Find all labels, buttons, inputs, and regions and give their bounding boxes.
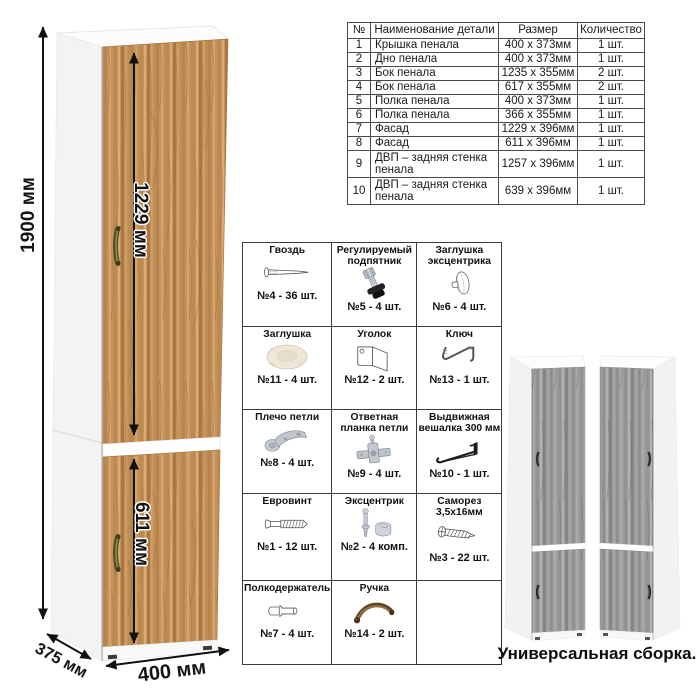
- assembly-sheet: 1900 мм 1229 мм 611 мм 400 мм 375 мм № Н…: [0, 0, 700, 700]
- nail-icon: [256, 256, 318, 290]
- hardware-item-count: №13 - 1 шт.: [429, 374, 489, 386]
- cell-name: Бок пенала: [371, 67, 499, 81]
- pullout-hanger-icon: [428, 434, 490, 468]
- hardware-item-count: №12 - 2 шт.: [344, 374, 404, 386]
- header-qty: Количество: [578, 23, 645, 39]
- cell-num: 8: [348, 137, 371, 151]
- adjustable-foot-icon: [343, 267, 405, 301]
- parts-table: № Наименование детали Размер Количество …: [347, 22, 645, 205]
- hardware-empty-cell: [417, 581, 502, 665]
- hardware-cell: Полкодержатель №7 - 4 шт.: [243, 581, 332, 665]
- cell-size: 400 x 373мм: [499, 53, 578, 67]
- hardware-cell: Уголок №12 - 2 шт.: [332, 327, 417, 410]
- cell-size: 400 x 373мм: [499, 39, 578, 53]
- table-row: 1 Крышка пенала 400 x 373мм 1 шт.: [348, 39, 645, 53]
- table-row: 3 Бок пенала 1235 x 355мм 2 шт.: [348, 67, 645, 81]
- cell-size: 1235 x 355мм: [499, 67, 578, 81]
- hardware-cell: Ключ №13 - 1 шт.: [417, 327, 502, 410]
- hardware-item-name: Гвоздь: [269, 245, 305, 256]
- hardware-item-count: №6 - 4 шт.: [432, 301, 486, 313]
- hardware-cell: Саморез 3,5х16мм №3 - 22 шт.: [417, 494, 502, 581]
- cell-name: ДВП – задняя стенка пенала: [371, 151, 499, 178]
- hardware-item-count: №7 - 4 шт.: [260, 628, 314, 640]
- hardware-item-name: Евровинт: [262, 496, 312, 507]
- cell-name: Дно пенала: [371, 53, 499, 67]
- hardware-cell: Заглушка эксцентрика №6 - 4 шт.: [417, 243, 502, 327]
- handle-icon: [343, 594, 405, 628]
- hardware-row: Гвоздь №4 - 36 шт. Регулируемый подпятни…: [243, 243, 502, 327]
- cell-name: Полка пенала: [371, 95, 499, 109]
- confirmat-screw-icon: [256, 507, 318, 541]
- hardware-cell: Плечо петли №8 - 4 шт.: [243, 410, 332, 494]
- cell-num: 3: [348, 67, 371, 81]
- cell-num: 1: [348, 39, 371, 53]
- plug-icon: [256, 340, 318, 374]
- hardware-item-count: №3 - 22 шт.: [429, 552, 489, 564]
- cell-num: 4: [348, 81, 371, 95]
- cell-qty: 1 шт.: [578, 123, 645, 137]
- cell-qty: 1 шт.: [578, 151, 645, 178]
- cell-name: Крышка пенала: [371, 39, 499, 53]
- hardware-cell: Заглушка №11 - 4 шт.: [243, 327, 332, 410]
- hardware-item-name: Саморез 3,5х16мм: [418, 496, 500, 518]
- dimension-label-height: 1900 мм: [18, 177, 40, 253]
- cell-size: 400 x 373мм: [499, 95, 578, 109]
- cell-qty: 1 шт.: [578, 178, 645, 205]
- hardware-item-count: №10 - 1 шт.: [429, 468, 489, 480]
- cell-qty: 1 шт.: [578, 39, 645, 53]
- corner-bracket-icon: [343, 340, 405, 374]
- hardware-item-count: №9 - 4 шт.: [347, 468, 401, 480]
- hardware-item-count: №14 - 2 шт.: [344, 628, 404, 640]
- cell-name: Бок пенала: [371, 81, 499, 95]
- cell-name: Фасад: [371, 123, 499, 137]
- table-row: 8 Фасад 611 x 396мм 1 шт.: [348, 137, 645, 151]
- hinge-arm-icon: [256, 423, 318, 457]
- hardware-item-count: №4 - 36 шт.: [257, 290, 317, 302]
- cell-name: ДВП – задняя стенка пенала: [371, 178, 499, 205]
- cell-size: 617 x 355мм: [499, 81, 578, 95]
- hardware-item-name: Ручка: [360, 583, 389, 594]
- cell-size: 611 x 396мм: [499, 137, 578, 151]
- hardware-row: Плечо петли №8 - 4 шт. Ответная планка п…: [243, 410, 502, 494]
- self-tapping-screw-icon: [428, 518, 490, 552]
- hardware-item-count: №1 - 12 шт.: [257, 541, 317, 553]
- table-row: 4 Бок пенала 617 x 355мм 2 шт.: [348, 81, 645, 95]
- hardware-item-name: Эксцентрик: [345, 496, 404, 507]
- cell-size: 366 x 355мм: [499, 109, 578, 123]
- cell-qty: 2 шт.: [578, 81, 645, 95]
- hardware-item-name: Плечо петли: [255, 412, 319, 423]
- hardware-item-count: №8 - 4 шт.: [260, 457, 314, 469]
- hardware-item-count: №11 - 4 шт.: [257, 374, 317, 386]
- hardware-cell: Евровинт №1 - 12 шт.: [243, 494, 332, 581]
- dimension-label-lower-door: 611 мм: [130, 502, 152, 566]
- hardware-item-name: Регулируемый подпятник: [333, 245, 415, 267]
- universal-assembly-note: Универсальная сборка.: [497, 644, 697, 664]
- header-size: Размер: [499, 23, 578, 39]
- cell-size: 1229 x 396мм: [499, 123, 578, 137]
- table-row: 10 ДВП – задняя стенка пенала 639 x 396м…: [348, 178, 645, 205]
- cam-lock-icon: [343, 507, 405, 541]
- hardware-item-name: Заглушка: [263, 329, 311, 340]
- hardware-cell: Ответная планка петли №9 - 4 шт.: [332, 410, 417, 494]
- cell-num: 5: [348, 95, 371, 109]
- hardware-item-name: Полкодержатель: [244, 583, 330, 594]
- hardware-item-name: Уголок: [357, 329, 391, 340]
- cell-qty: 1 шт.: [578, 95, 645, 109]
- shelf-pin-icon: [256, 594, 318, 628]
- hardware-item-count: №5 - 4 шт.: [347, 301, 401, 313]
- header-num: №: [348, 23, 371, 39]
- cell-qty: 1 шт.: [578, 109, 645, 123]
- hardware-row: Евровинт №1 - 12 шт. Эксцентрик №2 - 4 к…: [243, 494, 502, 581]
- table-row: 9 ДВП – задняя стенка пенала 1257 x 396м…: [348, 151, 645, 178]
- universal-assembly-cabinets: [505, 356, 680, 641]
- cam-cap-icon: [428, 267, 490, 301]
- hardware-cell: Регулируемый подпятник №5 - 4 шт.: [332, 243, 417, 327]
- hardware-cell: Выдвижная вешалка 300 мм №10 - 1 шт.: [417, 410, 502, 494]
- hardware-cell: Эксцентрик №2 - 4 комп.: [332, 494, 417, 581]
- hardware-cell: Гвоздь №4 - 36 шт.: [243, 243, 332, 327]
- cell-num: 10: [348, 178, 371, 205]
- table-row: 6 Полка пенала 366 x 355мм 1 шт.: [348, 109, 645, 123]
- cell-qty: 1 шт.: [578, 137, 645, 151]
- header-name: Наименование детали: [371, 23, 499, 39]
- cell-num: 2: [348, 53, 371, 67]
- hardware-item-count: №2 - 4 комп.: [341, 541, 408, 553]
- cell-num: 7: [348, 123, 371, 137]
- cell-qty: 1 шт.: [578, 53, 645, 67]
- cell-name: Фасад: [371, 137, 499, 151]
- cell-name: Полка пенала: [371, 109, 499, 123]
- table-row: 2 Дно пенала 400 x 373мм 1 шт.: [348, 53, 645, 67]
- cell-qty: 2 шт.: [578, 67, 645, 81]
- hardware-item-name: Ключ: [446, 329, 473, 340]
- cell-size: 1257 x 396мм: [499, 151, 578, 178]
- cell-size: 639 x 396мм: [499, 178, 578, 205]
- hardware-row: Заглушка №11 - 4 шт. Уголок №12 - 2 шт. …: [243, 327, 502, 410]
- hardware-cell: Ручка №14 - 2 шт.: [332, 581, 417, 665]
- hardware-row: Полкодержатель №7 - 4 шт. Ручка №14 - 2 …: [243, 581, 502, 665]
- hinge-plate-icon: [343, 434, 405, 468]
- cell-num: 6: [348, 109, 371, 123]
- dimension-label-upper-door: 1229 мм: [129, 182, 151, 258]
- hardware-item-name: Выдвижная вешалка 300 мм: [418, 412, 500, 434]
- hardware-item-name: Ответная планка петли: [333, 412, 415, 434]
- hardware-item-name: Заглушка эксцентрика: [418, 245, 500, 267]
- table-row: 5 Полка пенала 400 x 373мм 1 шт.: [348, 95, 645, 109]
- parts-table-header-row: № Наименование детали Размер Количество: [348, 23, 645, 39]
- hex-key-icon: [428, 340, 490, 374]
- cell-num: 9: [348, 151, 371, 178]
- table-row: 7 Фасад 1229 x 396мм 1 шт.: [348, 123, 645, 137]
- hardware-grid: Гвоздь №4 - 36 шт. Регулируемый подпятни…: [242, 242, 502, 665]
